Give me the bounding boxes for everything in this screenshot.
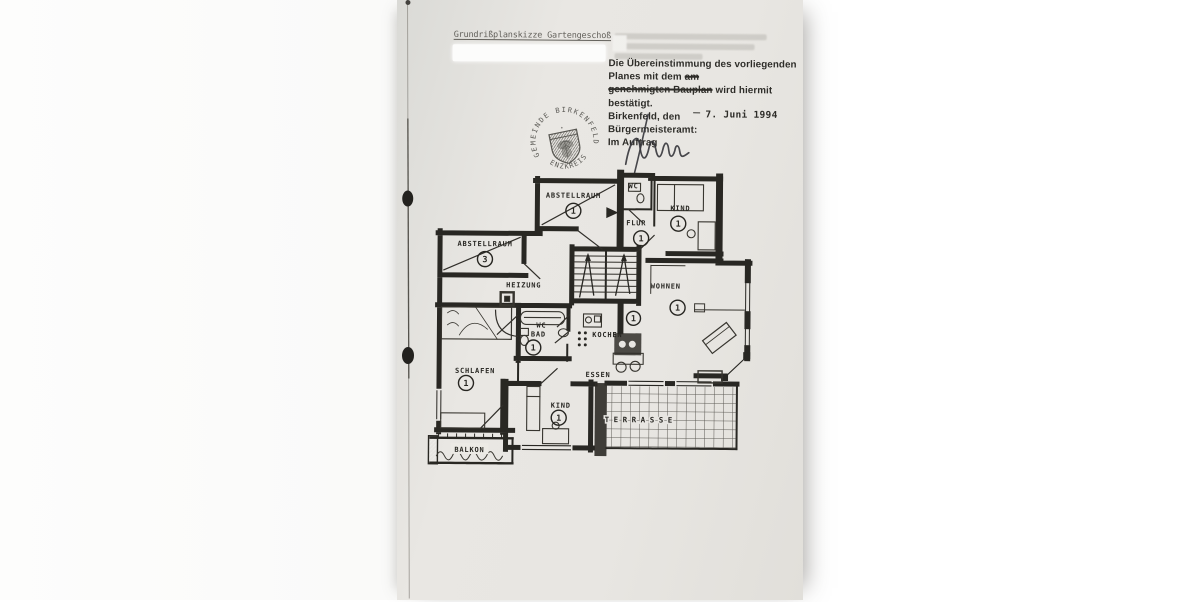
scanner-background: Grundrißplanskizze Gartengeschoß Die Übe…	[0, 0, 1200, 600]
room-label-schlafen: SCHLAFEN	[455, 367, 495, 375]
struck-text: genehmigten Bauplan	[608, 84, 712, 96]
room-label-flur: FLUR	[626, 219, 646, 227]
scanned-paper-sheet: Grundrißplanskizze Gartengeschoß Die Übe…	[397, 0, 803, 600]
unit-number: 1	[676, 220, 681, 230]
room-label-terrasse: TERRASSE	[605, 415, 677, 425]
unit-number: 1	[556, 414, 561, 424]
room-label-wc2: WC	[536, 322, 546, 330]
room-label-balkon: BALKON	[454, 446, 484, 454]
unit-number: 1	[675, 304, 680, 314]
unit-number: 1	[463, 379, 468, 389]
room-label-wohnen: WOHNEN	[651, 282, 681, 290]
room-label-abstellraum1: ABSTELLRAUM	[546, 192, 601, 200]
approval-line: genehmigten Bauplanwird hiermit	[608, 83, 794, 98]
unit-number: 1	[631, 314, 636, 324]
unit-number: 1	[571, 207, 576, 217]
unit-number: 1	[531, 343, 536, 353]
room-label-kind-top: KIND	[670, 205, 690, 213]
ghost-line	[615, 43, 755, 50]
room-label-wc: WC	[628, 182, 638, 190]
paper-content: Grundrißplanskizze Gartengeschoß Die Übe…	[392, 0, 803, 602]
ghost-redaction-notch	[613, 35, 627, 51]
struck-text: am	[685, 72, 699, 83]
entrance-arrow-icon	[606, 207, 618, 218]
ghost-line	[615, 33, 767, 40]
document-title: Grundrißplanskizze Gartengeschoß	[454, 30, 611, 41]
paper-fold-and-binding-marks	[392, 0, 427, 599]
room-label-essen: ESSEN	[585, 371, 610, 379]
room-label-heizung: HEIZUNG	[506, 281, 541, 289]
room-label-kochen: KOCHEN	[592, 331, 622, 339]
floor-plan: ABSTELLRAUM WC FLUR KIND ABSTELLRAUM HEI…	[416, 164, 768, 482]
redaction-bar	[453, 44, 606, 61]
room-label-abstellraum3: ABSTELLRAUM	[457, 240, 512, 248]
stamp-crest-mark: ✦	[560, 126, 564, 131]
unit-number: 1	[639, 234, 644, 244]
room-label-bad: BAD	[531, 330, 546, 338]
approval-text: Planes mit dem	[608, 71, 681, 83]
unit-number: 3	[482, 255, 487, 265]
room-label-kind-bottom: KIND	[551, 402, 571, 410]
approval-text: wird hiermit	[715, 85, 772, 96]
